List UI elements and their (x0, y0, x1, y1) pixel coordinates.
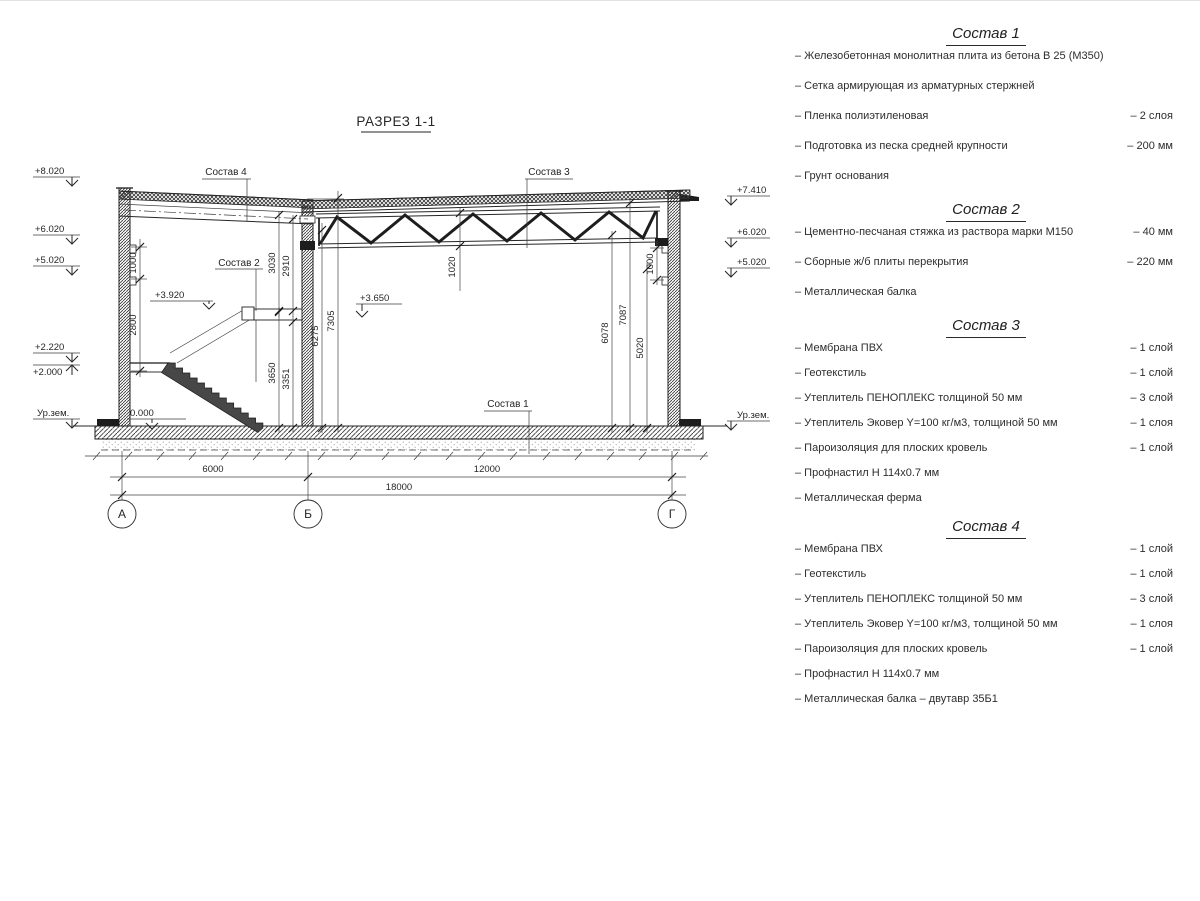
dim-label: 3650 (267, 362, 278, 383)
legend-item-label: – Пароизоляция для плоских кровель (795, 443, 987, 454)
legend-item: – Сборные ж/б плиты перекрытия – 220 мм (795, 257, 1177, 268)
elevation-label: +6.020 (35, 224, 64, 235)
legend-item: – Металлическая балка – двутавр 35Б1 (795, 694, 1177, 705)
dim-label: 7305 (326, 310, 337, 331)
leader-label: Состав 1 (487, 399, 529, 410)
elevation-label: +5.020 (35, 255, 64, 266)
wall-axis-g (655, 191, 699, 426)
legend-item: – Металлическая ферма (795, 493, 1177, 504)
elevation-marks-right: +7.410 +6.020 +5.020 Ур.зем. (725, 185, 770, 430)
dims-right: 6078 7087 5020 1000 (600, 199, 664, 433)
legend-item-label: – Металлическая балка (795, 287, 917, 298)
legend-item-label: – Сборные ж/б плиты перекрытия (795, 257, 968, 268)
legend-item: – Утеплитель Эковер Y=100 кг/м3, толщино… (795, 418, 1177, 429)
leader-label: Состав 3 (528, 167, 570, 178)
elevation-label: +6.020 (737, 227, 766, 238)
legend-item-value: – 2 слоя (1131, 111, 1177, 122)
span-dimensions: 6000 12000 18000 (110, 451, 686, 500)
legend-item-label: – Утеплитель ПЕНОПЛЕКС толщиной 50 мм (795, 393, 1022, 404)
legend-item-value: – 1 слой (1130, 544, 1177, 555)
axis-label: Б (304, 507, 312, 521)
legend-item-label: – Утеплитель ПЕНОПЛЕКС толщиной 50 мм (795, 594, 1022, 605)
dim-label: 6275 (310, 325, 321, 346)
legend-item-value: – 1 слой (1130, 644, 1177, 655)
drawing-sheet: РАЗРЕЗ 1-1 (0, 0, 1200, 901)
axis-label: Г (669, 507, 676, 521)
span-label: 6000 (202, 464, 223, 475)
legend-item: – Пленка полиэтиленовая – 2 слоя (795, 111, 1177, 122)
legend-item: – Утеплитель Эковер Y=100 кг/м3, толщино… (795, 619, 1177, 630)
legend-item-label: – Пароизоляция для плоских кровель (795, 644, 987, 655)
dim-label: 6078 (600, 322, 611, 343)
dim-label: 5020 (635, 337, 646, 358)
elevation-label: +2.220 (35, 342, 64, 353)
section-drawing: РАЗРЕЗ 1-1 (0, 1, 790, 561)
elevation-label: 0.000 (130, 408, 154, 419)
leader-sostav2: Состав 2 (215, 258, 263, 311)
dim-label: 1020 (447, 256, 458, 277)
materials-legend: Состав 1 – Железобетонная монолитная пли… (795, 17, 1177, 719)
legend-item-label: – Металлическая балка – двутавр 35Б1 (795, 694, 998, 705)
leader-label: Состав 4 (205, 167, 247, 178)
elevation-label: Ур.зем. (737, 410, 769, 421)
span-label: 18000 (386, 482, 412, 493)
roof-left-bay (119, 191, 313, 224)
stair-flight-lower (162, 363, 263, 433)
span-label: 12000 (474, 464, 500, 475)
roof-truss (316, 207, 660, 248)
dim-label: 3351 (281, 368, 292, 389)
meter-tick-line (85, 452, 708, 460)
legend-item-label: – Мембрана ПВХ (795, 544, 883, 555)
legend-item: – Подготовка из песка средней крупности … (795, 141, 1177, 152)
elevation-marks-left: +8.020 +6.020 +5.020 +2.220 +2.000 Ур.зе… (33, 166, 80, 428)
elevation-label: +2.000 (33, 367, 62, 378)
legend-item-label: – Профнастил Н 114х0.7 мм (795, 468, 939, 479)
legend-item-label: – Грунт основания (795, 171, 889, 182)
legend-section-2: Состав 2 – Цементно-песчаная стяжка из р… (795, 201, 1177, 298)
legend-item-value: – 3 слой (1130, 393, 1177, 404)
legend-item: – Грунт основания (795, 171, 1177, 182)
legend-section-title: Состав 4 (795, 518, 1177, 539)
legend-item-value: – 220 мм (1127, 257, 1177, 268)
legend-section-title: Состав 1 (795, 25, 1177, 46)
legend-item-value: – 40 мм (1133, 227, 1177, 238)
legend-item-value: – 1 слоя (1131, 619, 1177, 630)
legend-item-label: – Сетка армирующая из арматурных стержне… (795, 81, 1034, 92)
legend-item: – Профнастил Н 114х0.7 мм (795, 669, 1177, 680)
legend-item: – Пароизоляция для плоских кровель – 1 с… (795, 443, 1177, 454)
elevation-label: +7.410 (737, 185, 766, 196)
legend-item: – Геотекстиль – 1 слой (795, 368, 1177, 379)
leader-sostav3: Состав 3 (525, 167, 573, 248)
legend-item-label: – Металлическая ферма (795, 493, 922, 504)
dim-label: 2910 (281, 255, 292, 276)
dim-label: 7087 (618, 304, 629, 325)
legend-item-label: – Профнастил Н 114х0.7 мм (795, 669, 939, 680)
legend-item-value: – 1 слой (1130, 569, 1177, 580)
legend-item: – Сетка армирующая из арматурных стержне… (795, 81, 1177, 92)
wall-axis-a (116, 188, 136, 426)
axis-label: А (118, 507, 126, 521)
legend-item: – Металлическая балка (795, 287, 1177, 298)
dim-label: 1000 (645, 253, 656, 274)
legend-item-label: – Подготовка из песка средней крупности (795, 141, 1008, 152)
dim-truss-height: 1020 (447, 207, 464, 291)
legend-item-value: – 200 мм (1127, 141, 1177, 152)
legend-item: – Утеплитель ПЕНОПЛЕКС толщиной 50 мм – … (795, 393, 1177, 404)
dim-label: 2800 (128, 314, 139, 335)
legend-item-label: – Пленка полиэтиленовая (795, 111, 928, 122)
leader-sostav4: Состав 4 (202, 167, 251, 221)
legend-item: – Пароизоляция для плоских кровель – 1 с… (795, 644, 1177, 655)
legend-item-label: – Геотекстиль (795, 368, 866, 379)
legend-item-value: – 3 слой (1130, 594, 1177, 605)
elevation-label: +3.650 (360, 293, 389, 304)
legend-item: – Цементно-песчаная стяжка из раствора м… (795, 227, 1177, 238)
legend-item-label: – Утеплитель Эковер Y=100 кг/м3, толщино… (795, 619, 1058, 630)
legend-item: – Мембрана ПВХ – 1 слой (795, 544, 1177, 555)
legend-item-value: – 1 слой (1130, 343, 1177, 354)
legend-section-1: Состав 1 – Железобетонная монолитная пли… (795, 25, 1177, 182)
legend-item-value: – 1 слой (1130, 368, 1177, 379)
axis-bubbles: А Б Г (108, 500, 686, 528)
legend-item-label: – Цементно-песчаная стяжка из раствора м… (795, 227, 1073, 238)
legend-item-value: – 1 слоя (1131, 418, 1177, 429)
elevation-label: +8.020 (35, 166, 64, 177)
legend-item-value: – 1 слой (1130, 443, 1177, 454)
elevation-label: +5.020 (737, 257, 766, 268)
dims-left: 1000 2800 (128, 239, 147, 377)
drawing-title: РАЗРЕЗ 1-1 (356, 114, 435, 132)
legend-item-label: – Геотекстиль (795, 569, 866, 580)
legend-section-title: Состав 2 (795, 201, 1177, 222)
elevation-label: Ур.зем. (37, 408, 69, 419)
legend-item-label: – Утеплитель Эковер Y=100 кг/м3, толщино… (795, 418, 1058, 429)
legend-section-title: Состав 3 (795, 317, 1177, 338)
legend-item-label: – Мембрана ПВХ (795, 343, 883, 354)
legend-item: – Мембрана ПВХ – 1 слой (795, 343, 1177, 354)
legend-item: – Утеплитель ПЕНОПЛЕКС толщиной 50 мм – … (795, 594, 1177, 605)
elevation-label: +3.920 (155, 290, 184, 301)
legend-item: – Железобетонная монолитная плита из бет… (795, 51, 1177, 62)
legend-item: – Геотекстиль – 1 слой (795, 569, 1177, 580)
dim-label: 3030 (267, 252, 278, 273)
dim-label: 1000 (128, 252, 139, 273)
legend-section-3: Состав 3 – Мембрана ПВХ – 1 слой – Геоте… (795, 317, 1177, 504)
section-title-text: РАЗРЕЗ 1-1 (356, 114, 435, 129)
legend-item-label: – Железобетонная монолитная плита из бет… (795, 51, 1104, 62)
leader-label: Состав 2 (218, 258, 260, 269)
floor-slab (73, 419, 727, 450)
legend-section-4: Состав 4 – Мембрана ПВХ – 1 слой – Геоте… (795, 518, 1177, 705)
legend-item: – Профнастил Н 114х0.7 мм (795, 468, 1177, 479)
